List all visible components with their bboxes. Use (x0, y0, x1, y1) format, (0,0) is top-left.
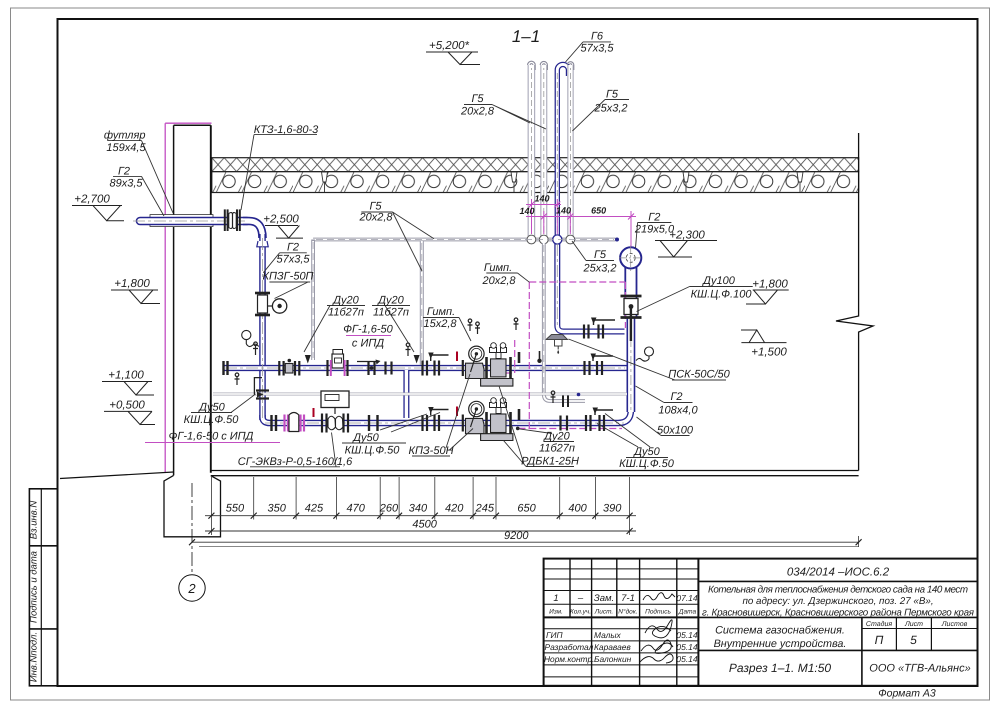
svg-text:11б27п: 11б27п (539, 443, 575, 455)
svg-text:Балонкин: Балонкин (594, 654, 632, 664)
svg-text:108x4,0: 108x4,0 (658, 405, 698, 417)
svg-text:140: 140 (519, 206, 534, 216)
svg-text:N°док.: N°док. (618, 609, 638, 616)
svg-text:550: 550 (226, 503, 245, 515)
svg-text:470: 470 (347, 503, 366, 515)
svg-text:Лист.: Лист. (594, 609, 614, 616)
svg-text:Разработал: Разработал (545, 642, 594, 652)
svg-text:П: П (875, 633, 884, 647)
svg-text:Ду50: Ду50 (197, 402, 225, 414)
svg-text:1–1: 1–1 (512, 27, 540, 46)
svg-text:Малых: Малых (594, 630, 622, 640)
svg-text:57x3,5: 57x3,5 (276, 254, 310, 266)
svg-text:Г5: Г5 (606, 89, 619, 101)
svg-text:05.14: 05.14 (676, 654, 698, 664)
svg-text:+2,700: +2,700 (74, 194, 110, 206)
svg-text:Система газоснабжения.: Система газоснабжения. (715, 625, 845, 637)
svg-text:КШ.Ц.Ф.50: КШ.Ц.Ф.50 (619, 458, 675, 470)
svg-text:КШ.Ц.Ф.50: КШ.Ц.Ф.50 (184, 414, 240, 426)
svg-text:340: 340 (409, 503, 428, 515)
svg-text:11б27п: 11б27п (328, 307, 364, 319)
svg-text:Внутренние устройства.: Внутренние устройства. (714, 638, 847, 650)
svg-text:Г5: Г5 (594, 249, 607, 261)
svg-text:50x100: 50x100 (657, 425, 694, 437)
svg-text:+2,300: +2,300 (669, 230, 705, 242)
svg-text:ООО «ТГВ-Альянс»: ООО «ТГВ-Альянс» (869, 663, 970, 675)
svg-text:+1,500: +1,500 (751, 347, 787, 359)
svg-text:25x3,2: 25x3,2 (593, 103, 627, 115)
svg-text:КШ.Ц.Ф.50: КШ.Ц.Ф.50 (345, 445, 401, 457)
svg-text:15x2,8: 15x2,8 (423, 318, 457, 330)
svg-text:Ду20: Ду20 (331, 295, 359, 307)
svg-text:Подпись и дата: Подпись и дата (29, 551, 40, 623)
svg-text:140: 140 (556, 206, 571, 216)
svg-text:7-1: 7-1 (621, 593, 635, 604)
svg-text:420: 420 (445, 503, 464, 515)
svg-text:25x3,2: 25x3,2 (582, 263, 616, 275)
svg-text:Караваев: Караваев (594, 642, 631, 652)
svg-text:Инв.Nподл.: Инв.Nподл. (29, 632, 40, 682)
svg-text:20x2,8: 20x2,8 (460, 106, 495, 118)
svg-text:КШ.Ц.Ф.100: КШ.Ц.Ф.100 (691, 289, 753, 301)
svg-text:Г6: Г6 (591, 31, 604, 43)
svg-text:ПСК-50С/50: ПСК-50С/50 (668, 369, 730, 381)
svg-text:Ду100: Ду100 (701, 275, 736, 287)
svg-text:Гимп.: Гимп. (427, 306, 455, 318)
svg-text:+2,500: +2,500 (263, 214, 299, 226)
svg-text:159x4,5: 159x4,5 (106, 142, 146, 154)
svg-text:20x2,8: 20x2,8 (481, 275, 516, 287)
svg-text:ФГ-1,6-50 с ИПД: ФГ-1,6-50 с ИПД (169, 431, 254, 443)
svg-text:350: 350 (268, 503, 287, 515)
svg-text:034/2014 –ИОС.6.2: 034/2014 –ИОС.6.2 (787, 567, 890, 579)
svg-text:425: 425 (305, 503, 324, 515)
svg-text:2: 2 (187, 581, 196, 596)
svg-text:+5,200*: +5,200* (429, 40, 469, 52)
svg-text:20x2,8: 20x2,8 (358, 212, 393, 224)
svg-text:Ду20: Ду20 (542, 431, 570, 443)
svg-text:–: – (577, 593, 584, 604)
svg-text:Формат А3: Формат А3 (878, 688, 936, 700)
svg-text:Листов: Листов (941, 621, 968, 628)
svg-text:+1,800: +1,800 (114, 278, 150, 290)
svg-text:+1,800: +1,800 (752, 279, 788, 291)
svg-text:КПЗ-50Н: КПЗ-50Н (408, 445, 453, 457)
svg-text:КТЗ-1,6-80-3: КТЗ-1,6-80-3 (254, 124, 319, 136)
svg-text:с ИПД: с ИПД (352, 338, 384, 350)
svg-text:г. Красновишерск, Красновишерс: г. Красновишерск, Красновишерского район… (702, 607, 975, 618)
svg-text:Разрез 1–1. М1:50: Разрез 1–1. М1:50 (729, 661, 831, 675)
svg-text:Г2: Г2 (648, 212, 660, 224)
svg-text:Г2: Г2 (287, 242, 299, 254)
svg-text:Ду20: Ду20 (376, 295, 404, 307)
svg-text:Г2: Г2 (670, 391, 682, 403)
svg-text:ФГ-1,6-50: ФГ-1,6-50 (343, 324, 393, 336)
svg-text:Кол.уч.: Кол.уч. (570, 609, 591, 616)
svg-text:+1,100: +1,100 (108, 370, 144, 382)
svg-text:9200: 9200 (504, 530, 529, 542)
svg-text:260: 260 (379, 503, 399, 515)
svg-text:КПЗГ-50П: КПЗГ-50П (262, 271, 313, 283)
svg-text:РДБК1-25Н: РДБК1-25Н (521, 456, 579, 468)
svg-text:СГ-ЭКВз-Р-0,5-160/1,6: СГ-ЭКВз-Р-0,5-160/1,6 (238, 456, 353, 468)
svg-text:650: 650 (591, 206, 606, 216)
svg-text:Изм.: Изм. (549, 609, 563, 616)
svg-text:Г5: Г5 (471, 93, 484, 105)
svg-text:400: 400 (568, 503, 587, 515)
svg-text:по адресу: ул. Дзержинского, п: по адресу: ул. Дзержинского, поз. 27 «В»… (742, 596, 933, 607)
svg-text:Дата: Дата (678, 609, 697, 616)
svg-text:57x3,5: 57x3,5 (580, 43, 614, 55)
svg-text:Гимп.: Гимп. (484, 262, 512, 274)
svg-text:4500: 4500 (412, 519, 437, 531)
svg-text:Зам.: Зам. (594, 593, 614, 604)
svg-text:Ду50: Ду50 (632, 446, 660, 458)
svg-text:Вз.инв.N: Вз.инв.N (29, 501, 40, 540)
svg-text:650: 650 (517, 503, 536, 515)
svg-text:5: 5 (910, 633, 917, 647)
svg-text:140: 140 (534, 194, 549, 204)
svg-text:07.14: 07.14 (676, 593, 698, 603)
svg-text:89x3,5: 89x3,5 (109, 178, 143, 190)
svg-text:05.14: 05.14 (676, 642, 698, 652)
svg-text:Котельная для теплоснабжения д: Котельная для теплоснабжения детского са… (708, 585, 968, 596)
svg-text:245: 245 (475, 503, 495, 515)
svg-text:Подпись: Подпись (645, 609, 671, 616)
svg-text:11б27п: 11б27п (373, 307, 409, 319)
svg-text:+0,500: +0,500 (109, 400, 145, 412)
svg-text:Г2: Г2 (118, 166, 130, 178)
svg-text:Норм.контр.: Норм.контр. (544, 654, 594, 664)
svg-text:1: 1 (553, 593, 558, 604)
svg-text:футляр: футляр (104, 130, 146, 142)
svg-text:390: 390 (603, 503, 622, 515)
svg-text:Стадия: Стадия (866, 620, 892, 628)
svg-text:Ду50: Ду50 (351, 432, 379, 444)
svg-text:ГИП: ГИП (546, 630, 564, 640)
svg-text:05.14: 05.14 (676, 630, 698, 640)
svg-text:219x5,0: 219x5,0 (634, 224, 675, 236)
svg-text:Лист: Лист (904, 621, 923, 628)
